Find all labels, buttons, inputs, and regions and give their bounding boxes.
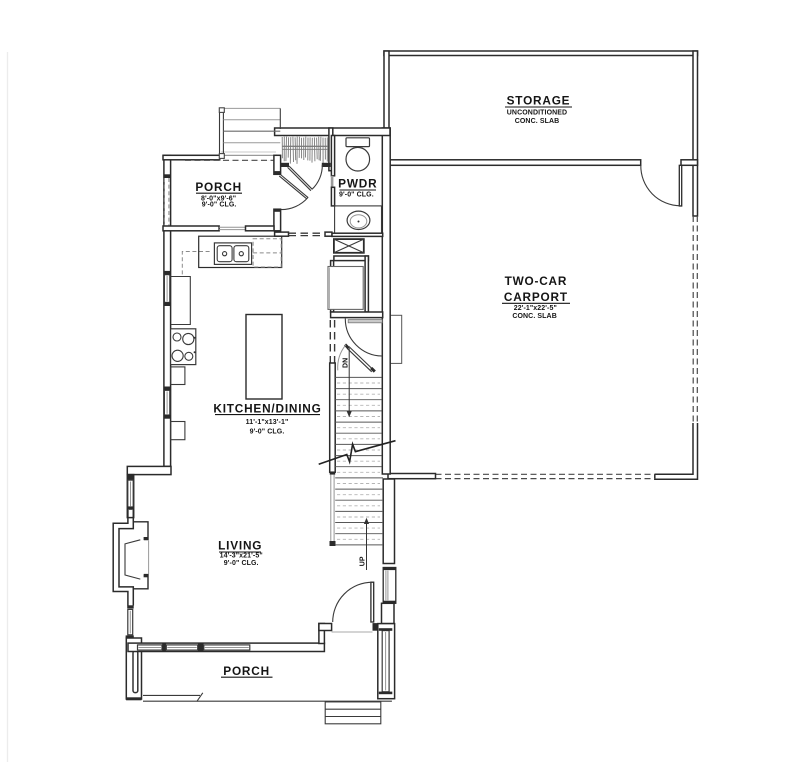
svg-text:PORCH: PORCH [195,180,242,194]
svg-text:14'-3"x21'-5": 14'-3"x21'-5" [220,553,263,560]
svg-text:PORCH: PORCH [223,664,270,678]
svg-text:11'-1"x13'-1": 11'-1"x13'-1" [246,419,289,426]
svg-text:KITCHEN/DINING: KITCHEN/DINING [213,402,321,416]
svg-text:DN: DN [343,358,350,368]
svg-text:UNCONDITIONED: UNCONDITIONED [507,110,567,117]
svg-text:CONC. SLAB: CONC. SLAB [512,313,557,320]
svg-text:PWDR: PWDR [338,177,377,191]
svg-text:TWO-CAR: TWO-CAR [505,274,568,288]
svg-text:9'-0" CLG.: 9'-0" CLG. [202,202,237,209]
svg-text:LIVING: LIVING [218,539,262,553]
svg-text:9'-0" CLG.: 9'-0" CLG. [250,429,285,436]
svg-text:STORAGE: STORAGE [507,94,571,108]
svg-text:CONC. SLAB: CONC. SLAB [515,118,560,125]
svg-text:9'-0" CLG.: 9'-0" CLG. [224,560,259,567]
svg-text:CARPORT: CARPORT [504,290,568,304]
svg-text:22'-1"x22'-5": 22'-1"x22'-5" [514,305,557,312]
svg-text:UP: UP [360,556,367,566]
svg-text:9'-0" CLG.: 9'-0" CLG. [339,192,374,199]
